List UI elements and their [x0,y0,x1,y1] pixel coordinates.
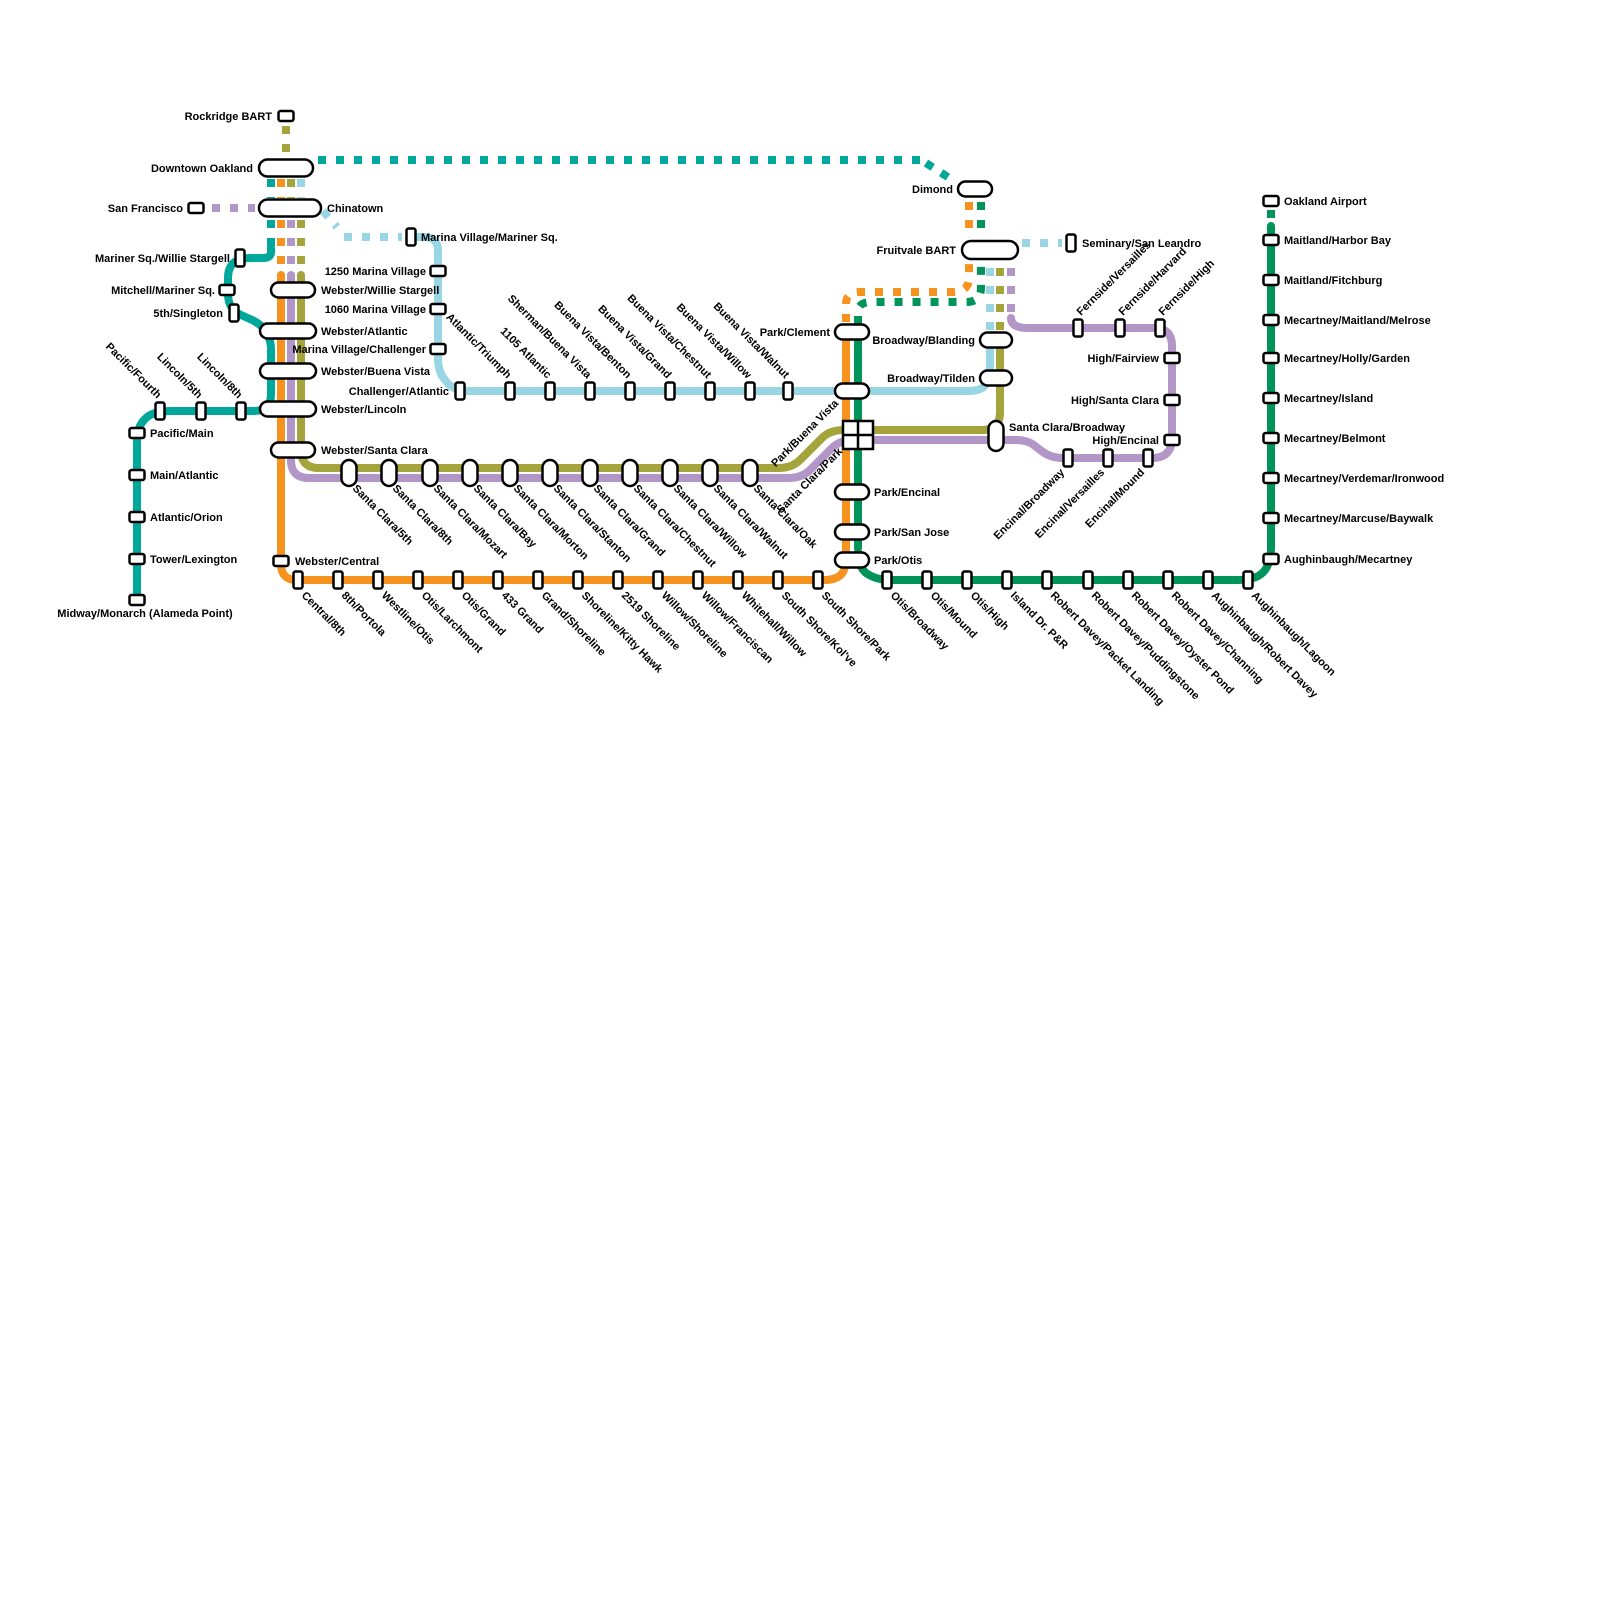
station-marker [666,383,675,400]
station-label: Broadway/Blanding [872,335,975,347]
station-marker [1043,572,1052,589]
station-marker [1104,450,1113,467]
station-marker [1264,196,1279,206]
station-marina-village-mariner-sq: Marina Village/Mariner Sq. [407,229,558,246]
station-marker [374,572,383,589]
station-label: Park/Otis [874,555,922,567]
station-marker [260,402,316,417]
station-marker [259,160,313,177]
station-label: Mecartney/Verdemar/Ironwood [1284,473,1444,485]
station-marker [1264,513,1279,523]
station-marker [1204,572,1213,589]
station-high-fairview: High/Fairview [1087,353,1179,365]
station-main-atlantic: Main/Atlantic [130,470,219,482]
station-label: Mecartney/Holly/Garden [1284,353,1410,365]
station-mecartney-verdemar-ironwood: Mecartney/Verdemar/Ironwood [1264,473,1445,485]
station-park-otis: Park/Otis [835,553,922,568]
station-marker [1264,473,1279,483]
station-label: San Francisco [108,203,183,215]
station-marker [814,572,823,589]
station-marker [835,384,869,399]
station-marker [543,460,558,486]
station-label: Dimond [912,184,953,196]
station-downtown-oakland: Downtown Oakland [151,160,313,177]
station-label: Midway/Monarch (Alameda Point) [57,608,233,620]
station-marker [1264,554,1279,564]
station-label: Challenger/Atlantic [349,386,449,398]
station-marker [1074,320,1083,337]
station-marker [130,470,145,480]
station-label: Marina Village/Mariner Sq. [421,232,558,244]
station-marker [1116,320,1125,337]
station-marker [614,572,623,589]
station-label: High/Santa Clara [1071,395,1160,407]
station-san-francisco: San Francisco [108,203,204,215]
station-marker [260,324,316,339]
station-aughinbaugh-mecartney: Aughinbaugh/Mecartney [1264,554,1414,566]
station-marker [835,485,869,500]
station-atlantic-orion: Atlantic/Orion [130,512,224,524]
station-mecartney-maitland-melrose: Mecartney/Maitland/Melrose [1264,315,1431,327]
station-label: 1250 Marina Village [325,266,426,278]
station-label: Webster/Willie Stargell [321,285,439,297]
station-label: Oakland Airport [1284,196,1367,208]
station-marker [1144,450,1153,467]
station-marker [260,364,316,379]
station-marker [703,460,718,486]
station-marker [835,553,869,568]
station-marker [583,460,598,486]
station-marker [1156,320,1165,337]
station-marker [503,460,518,486]
station-label: Mecartney/Island [1284,393,1373,405]
station-marker [663,460,678,486]
station-marker [463,460,478,486]
station-marker [784,383,793,400]
station-label: Park/Clement [760,327,831,339]
station-marker [574,572,583,589]
station-marker [1264,315,1279,325]
station-label: Mecartney/Belmont [1284,433,1386,445]
station-marker [835,325,869,340]
station-challenger-atlantic: Challenger/Atlantic [349,383,465,400]
station-label: Park/Encinal [874,487,940,499]
station-park-clement: Park/Clement [760,325,869,340]
station-marker [774,572,783,589]
station-marker [456,383,465,400]
station-marker [1067,235,1076,252]
station-marker [130,595,145,605]
station-label: 1060 Marina Village [325,304,426,316]
station-marker [431,344,446,354]
station-webster-santa-clara: Webster/Santa Clara [271,443,429,458]
station-mecartney-holly-garden: Mecartney/Holly/Garden [1264,353,1411,365]
station-marker [546,383,555,400]
station-marker [271,443,315,458]
station-marker [980,371,1012,386]
station-marker [334,572,343,589]
station-label: Chinatown [327,203,383,215]
station-pacific-main: Pacific/Main [130,428,214,440]
station-label: High/Fairview [1087,353,1159,365]
station-marker [407,229,416,246]
station-mecartney-marcuse-baywalk: Mecartney/Marcuse/Baywalk [1264,513,1435,525]
station-label: Fruitvale BART [877,245,957,257]
station-marker [130,554,145,564]
station-label: Marina Village/Challenger [292,344,426,356]
station-marker [958,182,992,197]
station-marker [623,460,638,486]
station-label: 5th/Singleton [153,308,223,320]
station-label: Downtown Oakland [151,163,253,175]
station-marker [130,512,145,522]
station-marker [1244,572,1253,589]
station-park-encinal: Park/Encinal [835,485,940,500]
station-marker [220,285,235,295]
station-marker [694,572,703,589]
station-high-encinal: High/Encinal [1092,435,1179,447]
station-marker [294,572,303,589]
station-label: Mitchell/Mariner Sq. [111,285,215,297]
station-marker [1264,393,1279,403]
station-marker [236,250,245,267]
station-marker [963,572,972,589]
station-label: Webster/Lincoln [321,404,407,416]
station-marker [1164,572,1173,589]
station-marker [980,333,1012,348]
station-marker [1124,572,1133,589]
station-marker [423,460,438,486]
station-marker [1064,450,1073,467]
station-label: Webster/Central [295,556,379,568]
station-marker [534,572,543,589]
station-label: Pacific/Main [150,428,214,440]
station-marker [734,572,743,589]
station-marker [230,305,239,322]
station-webster-willie-stargell: Webster/Willie Stargell [271,283,439,298]
station-marker [743,460,758,486]
station-marker [237,403,246,420]
station-marker [923,572,932,589]
station-label: Atlantic/Orion [150,512,223,524]
station-marker [506,383,515,400]
station-marker [431,304,446,314]
station-webster-buena-vista: Webster/Buena Vista [260,364,431,379]
station-label: High/Encinal [1092,435,1159,447]
transit-map: Rockridge BARTDowntown OaklandSan Franci… [0,0,1600,1600]
station-label: Park/San Jose [874,527,949,539]
station-marker [1264,235,1279,245]
station-marker [706,383,715,400]
station-label: Webster/Buena Vista [321,366,431,378]
station-webster-atlantic: Webster/Atlantic [260,324,408,339]
station-marker [835,525,869,540]
station-label: Mecartney/Maitland/Melrose [1284,315,1431,327]
station-marker [1003,572,1012,589]
station-webster-lincoln: Webster/Lincoln [260,402,407,417]
station-marker [130,428,145,438]
station-marker [1264,433,1279,443]
station-marker [1264,275,1279,285]
station-marker [746,383,755,400]
station-marker [259,200,321,217]
station-marina-village-challenger: Marina Village/Challenger [292,344,445,356]
station-marker [431,266,446,276]
station-label: Mecartney/Marcuse/Baywalk [1284,513,1434,525]
station-label: Maitland/Harbor Bay [1284,235,1392,247]
station-broadway-tilden: Broadway/Tilden [887,371,1012,386]
station-label: Mariner Sq./Willie Stargell [95,253,230,265]
station-marker [962,241,1018,259]
station-marker [197,403,206,420]
station-label: Santa Clara/Broadway [1009,422,1126,434]
station-marker [156,403,165,420]
station-marker [271,283,315,298]
station-marker [883,572,892,589]
station-label: Webster/Santa Clara [321,445,429,457]
station-marker [1264,353,1279,363]
station-dimond: Dimond [912,182,992,197]
station-marker [189,203,204,213]
station-mariner-sq-willie-stargell: Mariner Sq./Willie Stargell [95,250,245,267]
station-marker [454,572,463,589]
map-canvas: Rockridge BARTDowntown OaklandSan Franci… [0,0,1600,1600]
station-park-san-jose: Park/San Jose [835,525,949,540]
station-marker [654,572,663,589]
station-marker [342,460,357,486]
station-label: Aughinbaugh/Mecartney [1284,554,1413,566]
station-marker [1165,353,1180,363]
station-label: Maitland/Fitchburg [1284,275,1382,287]
station-marker [989,421,1004,451]
station-label: Tower/Lexington [150,554,237,566]
station-marker [626,383,635,400]
station-oakland-airport: Oakland Airport [1264,196,1368,208]
station-label: Broadway/Tilden [887,373,975,385]
station-label: Main/Atlantic [150,470,218,482]
station-marker [1084,572,1093,589]
station-marker [414,572,423,589]
station-label: Webster/Atlantic [321,326,408,338]
station-label: Rockridge BART [185,111,273,123]
station-marker [382,460,397,486]
station-marker [586,383,595,400]
station-marker [494,572,503,589]
station-broadway-blanding: Broadway/Blanding [872,333,1012,348]
station-marker [274,556,289,566]
station-marker [279,111,294,121]
station-marker [1165,395,1180,405]
station-marker [1165,435,1180,445]
